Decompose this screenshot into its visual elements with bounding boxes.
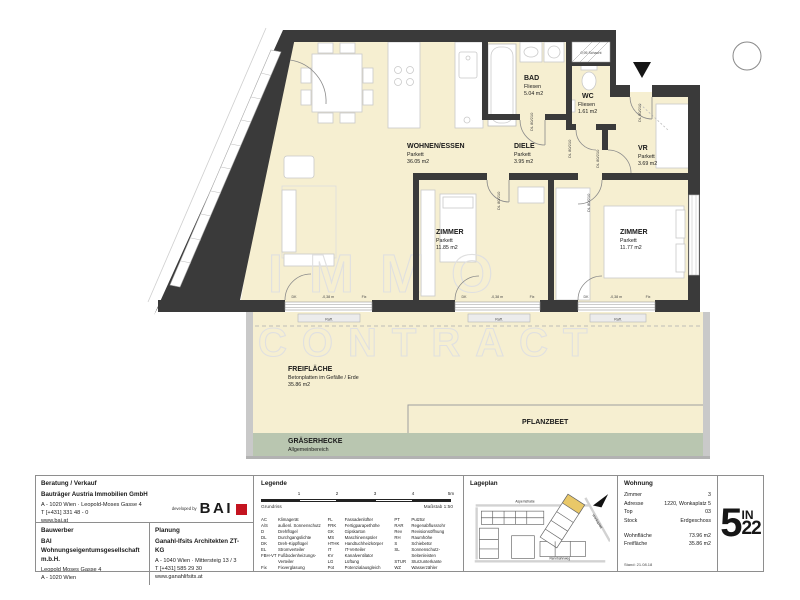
consult-section: Beratung / Verkauf Bauträger Austria Imm… <box>36 476 253 523</box>
entry-wall <box>610 85 630 97</box>
armchair <box>284 156 314 178</box>
stand-date: Stand: 21.08.18 <box>624 562 711 568</box>
room-name: ZIMMER <box>620 229 648 236</box>
svg-text:11.77 m2: 11.77 m2 <box>620 245 642 251</box>
svg-text:DK: DK <box>584 295 590 299</box>
bauwerber-section: Bauwerber BAI Wohnungseigentumsgesellsch… <box>36 523 150 585</box>
legend-header: Legende <box>261 479 456 488</box>
svg-text:DL 80/210: DL 80/210 <box>496 191 501 210</box>
svg-text:Fliesen: Fliesen <box>578 102 595 108</box>
svg-text:35.86 m2: 35.86 m2 <box>288 382 310 388</box>
svg-text:DL 80/210: DL 80/210 <box>567 139 572 158</box>
dresser <box>518 187 544 203</box>
street-top-label: Aspernstraße <box>515 500 534 504</box>
sofa <box>282 190 296 252</box>
kitchen-counter <box>388 42 420 128</box>
street-bottom-label: Rennbahnweg <box>549 557 570 561</box>
svg-text:DK: DK <box>462 295 468 299</box>
svg-text:Raff.: Raff. <box>614 318 622 322</box>
watermark-line1: IMMO <box>268 244 519 304</box>
room-name: ZIMMER <box>436 229 464 236</box>
consult-company: Bauträger Austria Immobilien GmbH <box>41 491 248 500</box>
freiflaeche-label: FREIFLÄCHE <box>288 365 333 373</box>
washbasin <box>520 42 542 62</box>
dining-table <box>312 54 362 112</box>
svg-text:Raff.: Raff. <box>325 318 333 322</box>
title-block: Beratung / Verkauf Bauträger Austria Imm… <box>35 475 764 572</box>
graeserhecke-label: GRÄSERHECKE <box>288 437 343 445</box>
consult-web: www.bai.at <box>41 517 248 525</box>
watermark-line2: CONTRACT <box>258 321 602 365</box>
svg-text:Betonplatten im Gefälle / Erde: Betonplatten im Gefälle / Erde <box>288 375 359 381</box>
svg-text:-0,38 m: -0,38 m <box>491 295 503 299</box>
toilet <box>582 72 596 90</box>
project-logo-column: 5 IN 22 <box>718 476 763 571</box>
scale-caption-left: Grundriss <box>261 505 282 512</box>
scale-captions: Grundriss Maßstab 1:50 <box>261 505 453 512</box>
svg-text:36.05 m2: 36.05 m2 <box>407 159 429 165</box>
right-window <box>689 195 699 275</box>
svg-text:DK: DK <box>292 295 298 299</box>
pflanzbeet-label: PFLANZBEET <box>522 419 569 426</box>
north-circle-icon <box>733 42 761 70</box>
bauwerber-company: BAI Wohnungseigentumsgesellschaft m.b.H. <box>41 538 144 565</box>
room-name: DIELE <box>514 143 535 150</box>
contact-column: Beratung / Verkauf Bauträger Austria Imm… <box>36 476 254 571</box>
svg-text:Parkett: Parkett <box>514 152 531 158</box>
building-2 <box>479 528 498 558</box>
top-wall <box>283 30 616 42</box>
planung-header: Planung <box>155 526 248 535</box>
svg-text:Fliesen: Fliesen <box>524 84 541 90</box>
washing-machine <box>544 42 564 62</box>
svg-text:DL 90/210: DL 90/210 <box>637 103 642 122</box>
terrace-border-bottom <box>246 456 710 459</box>
svg-text:-0,38 m: -0,38 m <box>610 295 622 299</box>
svg-text:Parkett: Parkett <box>638 154 655 160</box>
bai-logo: developed by BAI <box>172 503 247 515</box>
bottom-wall <box>158 300 285 312</box>
floor-plan: IMMO CONTRACT <box>0 0 800 470</box>
svg-text:Parkett: Parkett <box>436 238 453 244</box>
room-name: BAD <box>524 75 539 82</box>
building-3 <box>512 536 535 559</box>
svg-text:DL 80/210: DL 80/210 <box>529 112 534 131</box>
svg-text:-0,38 m: -0,38 m <box>322 295 334 299</box>
svg-text:DL 80/210: DL 80/210 <box>595 149 600 168</box>
terrace-border-right <box>703 312 710 459</box>
room-name: WOHNEN/ESSEN <box>407 143 465 150</box>
legend-column: Legende 1 2 3 4 5m Grundriss Maßstab 1:5… <box>254 476 464 571</box>
terrace-border-left <box>246 312 253 459</box>
room-name: VR <box>638 145 648 152</box>
svg-text:Parkett: Parkett <box>620 238 637 244</box>
bauwerber-header: Bauwerber <box>41 526 144 535</box>
legend-grid: ACKlimagerät A/Saußenl. Sonnenschutz DDr… <box>261 517 456 571</box>
entry-arrow-icon <box>633 62 651 78</box>
wohnung-header: Wohnung <box>624 479 711 488</box>
blind-boxes <box>298 314 646 322</box>
svg-text:Raff.: Raff. <box>495 318 503 322</box>
svg-text:1.61 m2: 1.61 m2 <box>578 109 597 115</box>
svg-text:Fix: Fix <box>362 295 367 299</box>
svg-text:DL 80/210: DL 80/210 <box>586 193 591 212</box>
street-right-label: Wonkaplatz <box>591 513 603 530</box>
svg-text:5.04 m2: 5.04 m2 <box>524 91 543 97</box>
planung-section: Planung Ganahl-Ifsits Architekten ZT-KG … <box>150 523 253 585</box>
site-map: Aspernstraße Wonkaplatz Rennbahnweg <box>470 491 610 571</box>
wohnung-column: Wohnung Zimmer3 Adresse1220, Wonkaplatz … <box>618 476 718 571</box>
north-arrow-icon <box>593 494 608 507</box>
building-4 <box>540 542 585 557</box>
svg-text:11.85 m2: 11.85 m2 <box>436 245 458 251</box>
svg-text:3.95 m2: 3.95 m2 <box>514 159 533 165</box>
vr-wardrobe <box>656 104 690 168</box>
svg-text:Allgemeinbereich: Allgemeinbereich <box>288 447 329 453</box>
svg-text:3.69 m2: 3.69 m2 <box>638 161 657 167</box>
5in22-logo: 5 IN 22 <box>720 508 760 539</box>
planung-company: Ganahl-Ifsits Architekten ZT-KG <box>155 538 248 556</box>
bathtub <box>488 44 516 126</box>
svg-text:Parkett: Parkett <box>407 152 424 158</box>
symbols-layer <box>633 42 761 78</box>
scale-bar: 1 2 3 4 5m <box>261 491 453 504</box>
scale-caption-right: Maßstab 1:50 <box>424 505 453 512</box>
svg-text:0,95 Schacht: 0,95 Schacht <box>581 51 602 55</box>
bai-red-square-icon <box>236 504 247 515</box>
svg-text:Fix: Fix <box>530 295 535 299</box>
room-name: WC <box>582 93 594 100</box>
bed-right <box>604 206 684 278</box>
developed-by-label: developed by <box>172 506 197 512</box>
consult-header: Beratung / Verkauf <box>41 479 248 488</box>
bai-logo-text: BAI <box>200 503 233 515</box>
lageplan-column: Lageplan <box>464 476 618 571</box>
svg-text:Fix: Fix <box>646 295 651 299</box>
terrace-doors <box>285 302 655 310</box>
lageplan-header: Lageplan <box>470 479 611 488</box>
